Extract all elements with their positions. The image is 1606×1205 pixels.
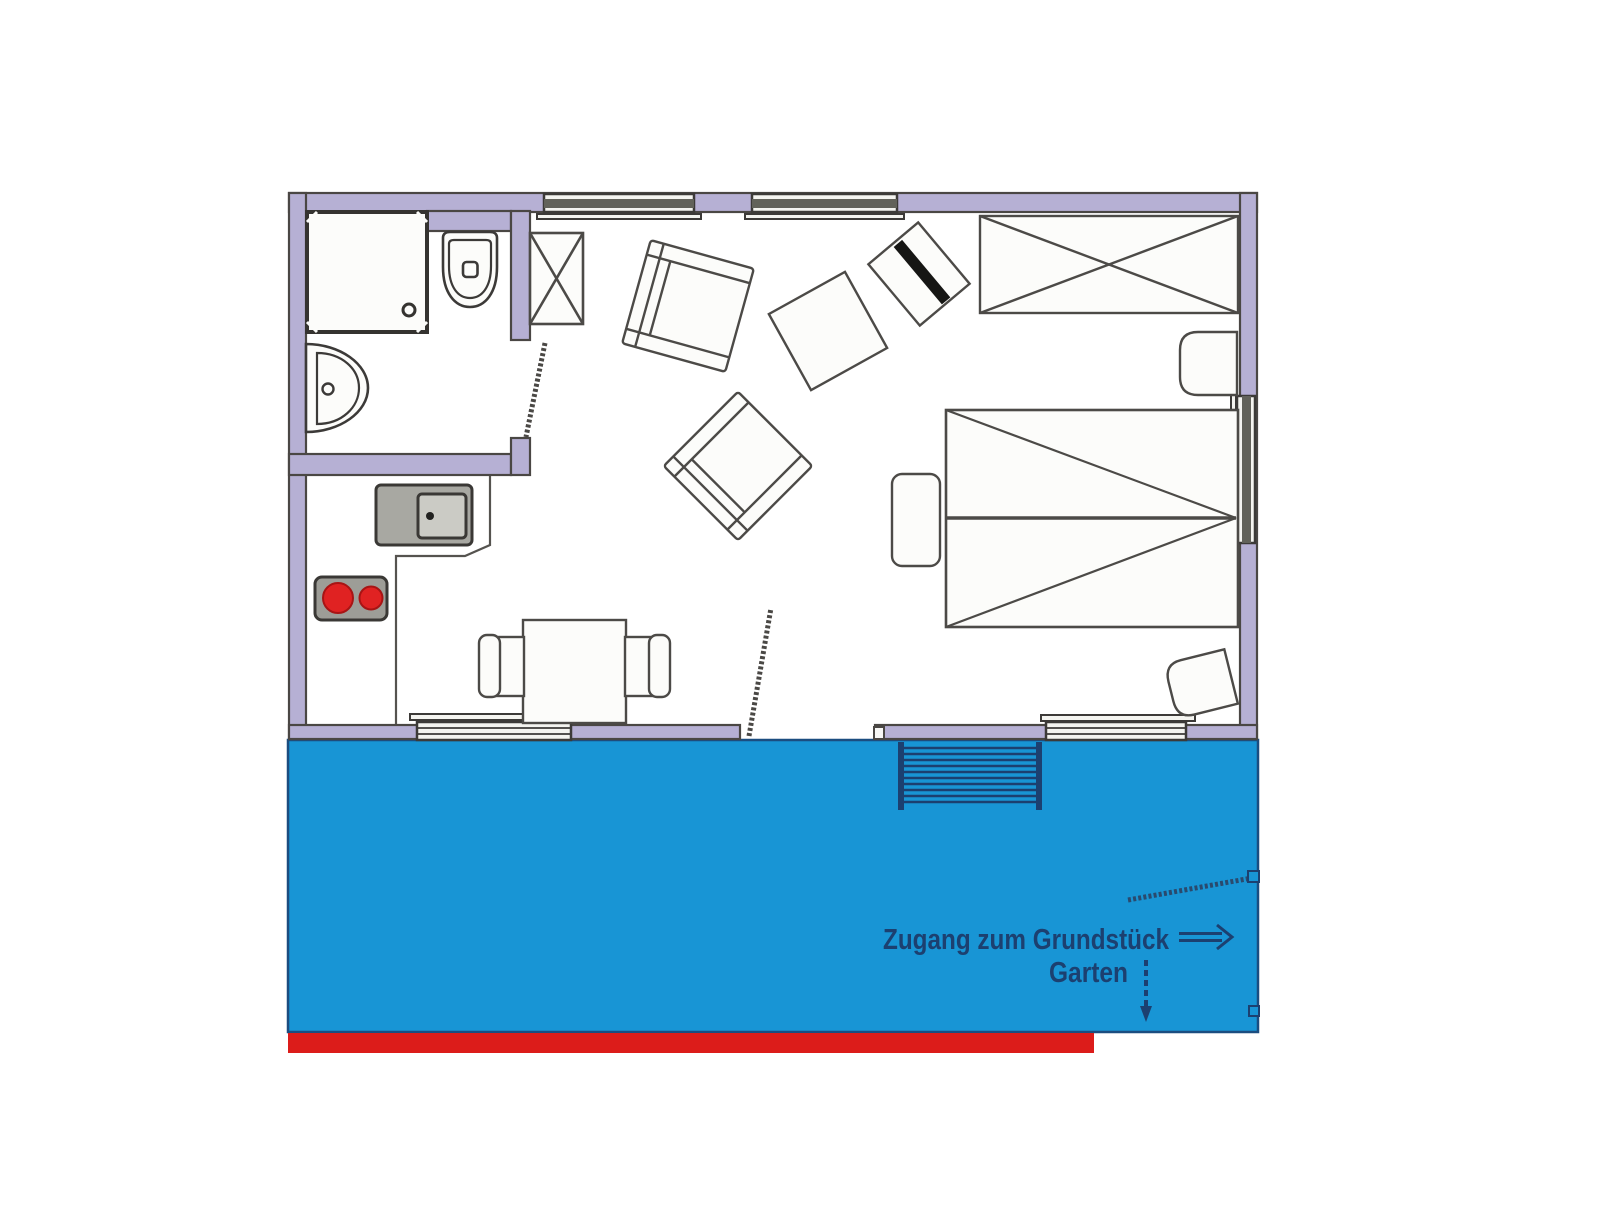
svg-text:Garten: Garten xyxy=(1049,957,1128,989)
svg-text:Zugang zum Grundstück: Zugang zum Grundstück xyxy=(883,924,1170,956)
